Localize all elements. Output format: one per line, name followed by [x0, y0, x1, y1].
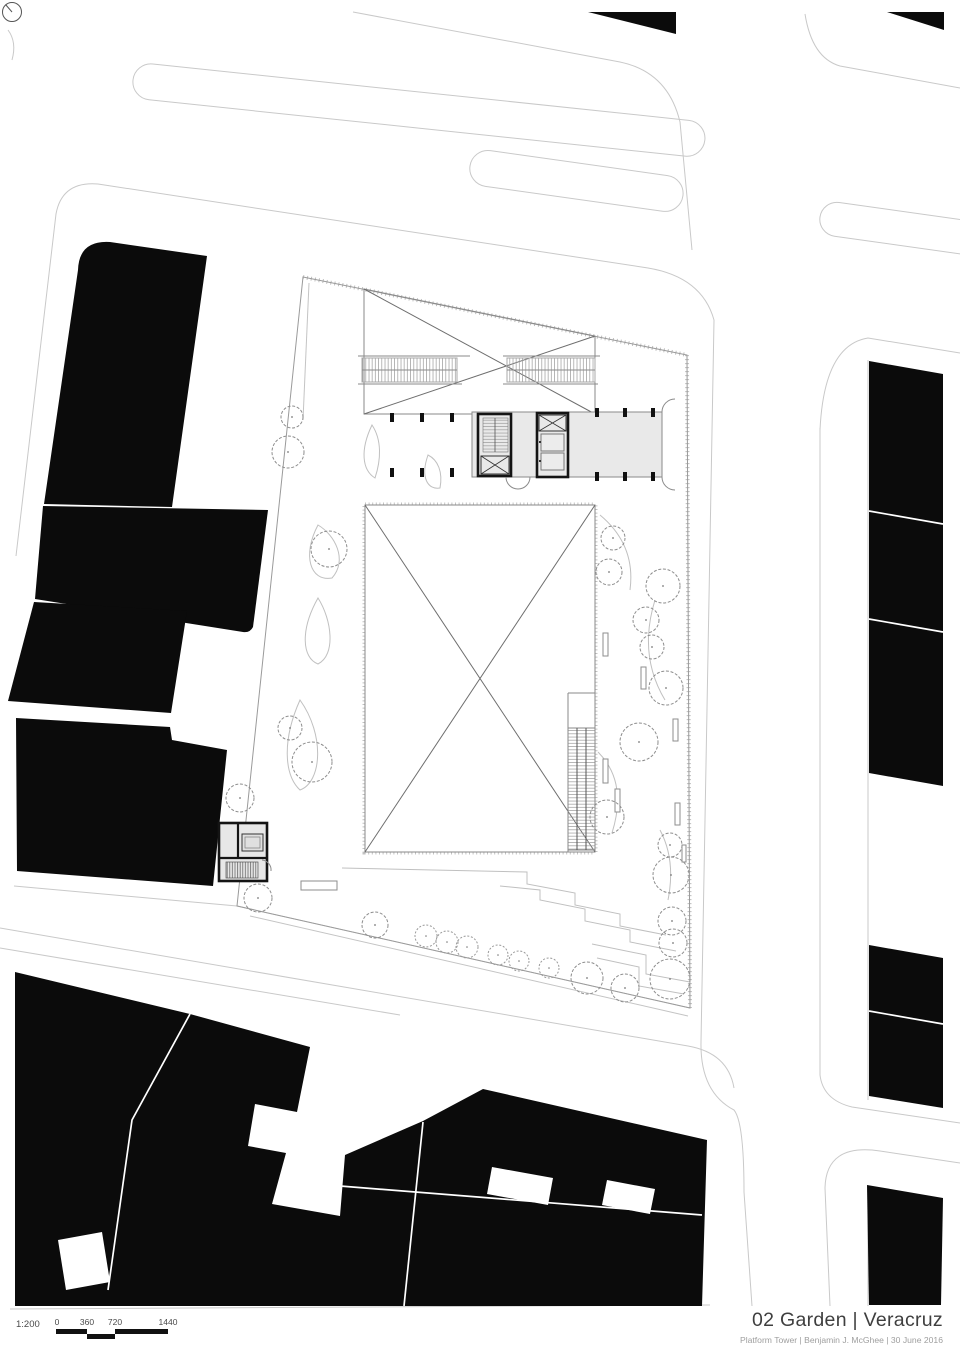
bench: [301, 881, 337, 890]
north-arrow-icon: [0, 0, 24, 24]
context-building: [588, 12, 676, 34]
title-block: 02 Garden | Veracruz Platform Tower | Be…: [740, 1309, 943, 1345]
site-plan-canvas: [0, 0, 960, 1359]
bench: [675, 803, 680, 825]
tree: [659, 929, 687, 957]
bed-curve: [648, 600, 665, 700]
core-slab: [390, 399, 675, 490]
tree: [658, 907, 686, 935]
bench: [603, 633, 608, 656]
tree: [633, 607, 659, 633]
planting-bed: [305, 598, 330, 664]
planting-bed: [425, 455, 441, 488]
tree: [646, 569, 680, 603]
scale-bar-segment: [115, 1329, 168, 1334]
tree: [611, 974, 639, 1002]
scale-bar-segment: [87, 1334, 115, 1339]
step-line: [342, 868, 666, 935]
tree: [596, 559, 622, 585]
scale-ratio: 1:200: [16, 1319, 40, 1330]
context-building: [8, 602, 187, 713]
context-building: [44, 242, 207, 507]
stair-treads: [226, 862, 258, 878]
door-swing: [506, 477, 530, 489]
step-line: [500, 886, 676, 951]
elevator-cab: [541, 434, 564, 451]
tower-footprint-outline: [364, 289, 595, 414]
door-swing: [662, 399, 675, 490]
tree: [571, 962, 603, 994]
bench: [641, 667, 646, 689]
planting-bed: [287, 700, 317, 790]
escalator-banks: [358, 356, 600, 384]
stair-treads: [483, 418, 508, 452]
street-tree: [509, 951, 529, 971]
street-median: [131, 62, 707, 158]
elevator-cab: [541, 453, 564, 470]
tree: [362, 912, 388, 938]
street-tree: [488, 945, 508, 965]
planting-bed: [310, 525, 340, 578]
tree: [278, 716, 302, 740]
bed-curve: [660, 830, 671, 900]
plaza-edge: [303, 283, 309, 420]
street-tree: [415, 925, 437, 947]
drawing-credit: Platform Tower | Benjamin J. McGhee | 30…: [740, 1335, 943, 1345]
context-building: [15, 972, 707, 1306]
step-line: [592, 944, 690, 982]
street-median: [818, 200, 960, 266]
street-tree: [456, 936, 478, 958]
street-curve: [8, 30, 14, 60]
scale-bar-segment: [56, 1329, 87, 1334]
terrace-steps: [342, 868, 690, 994]
tree: [244, 884, 272, 912]
tree: [281, 406, 303, 428]
bench: [673, 719, 678, 741]
context-building: [16, 718, 227, 886]
street-curb: [14, 886, 690, 1008]
tree: [292, 742, 332, 782]
planting-bed: [364, 425, 379, 478]
scale-tick-label: 720: [102, 1317, 128, 1327]
tree: [601, 526, 625, 550]
scale-tick-label: 1440: [155, 1317, 181, 1327]
tree: [658, 833, 682, 857]
tower-x-diagonals: [364, 289, 595, 414]
context-building: [867, 1185, 943, 1305]
context-building: [887, 12, 944, 30]
courtyard: [58, 1232, 110, 1290]
street-curb: [353, 12, 692, 250]
street-tree: [436, 931, 458, 953]
scale-tick-label: 360: [74, 1317, 100, 1327]
street-median: [467, 148, 685, 214]
scale-tick-label: 0: [44, 1317, 70, 1327]
drawing-sheet: 1:200 0 360 720 1440 02 Garden | Veracru…: [0, 0, 960, 1359]
tree: [620, 723, 658, 761]
bench: [603, 759, 608, 783]
tree: [272, 436, 304, 468]
bench: [682, 845, 686, 862]
context-building: [869, 361, 943, 786]
context-building: [869, 945, 943, 1108]
tree: [226, 784, 254, 812]
street-tree: [539, 958, 559, 978]
escalator-treads: [568, 728, 595, 850]
bench: [615, 789, 620, 812]
service-core: [219, 823, 271, 881]
tree: [650, 959, 690, 999]
tree: [311, 531, 347, 567]
tree: [640, 635, 664, 659]
tree: [649, 671, 683, 705]
central-void: [365, 505, 595, 852]
drawing-title: 02 Garden | Veracruz: [740, 1309, 943, 1332]
step-line: [597, 958, 684, 994]
